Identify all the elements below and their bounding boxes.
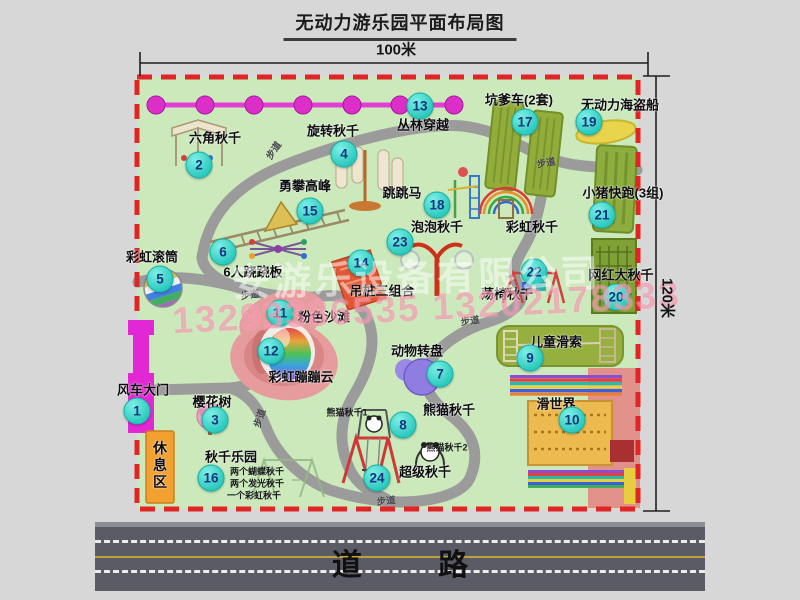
- attraction-label-16: 秋千乐园: [205, 447, 257, 466]
- marker-layer: 风车大门1六角秋千2樱花树3旋转秋千4彩虹滚筒56人跷跷板6动物转盘7熊猫秋千8…: [0, 0, 800, 600]
- sub-label-0: 熊猫秋千1: [326, 406, 367, 419]
- attraction-badge-6: 6: [210, 239, 237, 266]
- attraction-label-8: 熊猫秋千: [423, 400, 475, 419]
- attraction-badge-11: 11: [267, 300, 294, 327]
- footpath-label-4: 步道: [249, 407, 268, 429]
- attraction-label-5: 彩虹滚筒: [126, 247, 178, 266]
- attraction-label-21: 小猪快跑(3组): [583, 183, 664, 202]
- attraction-badge-4: 4: [331, 141, 358, 168]
- attraction-label-22: 荡椅秋千: [481, 284, 533, 303]
- attraction-label-7: 动物转盘: [391, 341, 443, 360]
- map-label-0: 彩虹秋千: [506, 217, 558, 236]
- attraction-label-14: 吊桩三组合: [349, 281, 414, 300]
- attraction-badge-3: 3: [202, 407, 229, 434]
- park-plan-screenshot: { "title": "无动力游乐园平面布局图", "dimensions": …: [0, 0, 800, 600]
- sub-label-1: 熊猫秋千2: [426, 441, 467, 454]
- attraction-label-18: 跳跳马: [382, 183, 421, 202]
- attraction-label-17: 坑爹车(2套): [485, 90, 553, 109]
- attraction-label-20: 网红大秋千: [588, 265, 653, 284]
- attraction-badge-8: 8: [390, 412, 417, 439]
- attraction-badge-24: 24: [364, 465, 391, 492]
- attraction-badge-17: 17: [512, 109, 539, 136]
- attraction-badge-20: 20: [603, 284, 630, 311]
- height-dimension-label: 120米: [658, 278, 679, 318]
- attraction-label-6: 6人跷跷板: [223, 262, 282, 281]
- attraction-badge-22: 22: [521, 259, 548, 286]
- page-title: 无动力游乐园平面布局图: [284, 9, 517, 41]
- footpath-label-1: 步道: [535, 153, 556, 170]
- footpath-label-5: 步道: [376, 492, 396, 508]
- attraction-badge-1: 1: [124, 398, 151, 425]
- width-dimension-label: 100米: [376, 39, 416, 60]
- attraction-label-1: 风车大门: [117, 380, 169, 399]
- attraction-label-15: 勇攀高峰: [279, 176, 331, 195]
- attraction-badge-18: 18: [424, 192, 451, 219]
- footpath-label-3: 步道: [460, 312, 481, 329]
- attraction-label-4: 旋转秋千: [307, 121, 359, 140]
- footpath-label-2: 步道: [240, 286, 261, 303]
- attraction-badge-13: 13: [407, 93, 434, 120]
- attraction-badge-21: 21: [589, 202, 616, 229]
- attraction-badge-19: 19: [576, 109, 603, 136]
- map-label-1: 休息区: [150, 441, 170, 492]
- attraction-label-2: 六角秋千: [189, 128, 241, 147]
- attraction-badge-2: 2: [186, 152, 213, 179]
- sub-label-4: 一个彩虹秋千: [227, 489, 281, 502]
- attraction-label-12: 彩虹蹦蹦云: [268, 367, 333, 386]
- attraction-label-11: 粉色沙滩: [298, 307, 350, 326]
- attraction-badge-5: 5: [147, 266, 174, 293]
- attraction-badge-15: 15: [297, 198, 324, 225]
- attraction-badge-7: 7: [427, 361, 454, 388]
- attraction-badge-9: 9: [517, 345, 544, 372]
- attraction-badge-14: 14: [348, 250, 375, 277]
- attraction-label-24: 超级秋千: [399, 462, 451, 481]
- attraction-badge-16: 16: [198, 465, 225, 492]
- footpath-label-0: 步道: [262, 138, 284, 162]
- attraction-badge-23: 23: [387, 229, 414, 256]
- attraction-label-23: 泡泡秋千: [411, 217, 463, 236]
- attraction-badge-10: 10: [559, 407, 586, 434]
- attraction-badge-12: 12: [258, 338, 285, 365]
